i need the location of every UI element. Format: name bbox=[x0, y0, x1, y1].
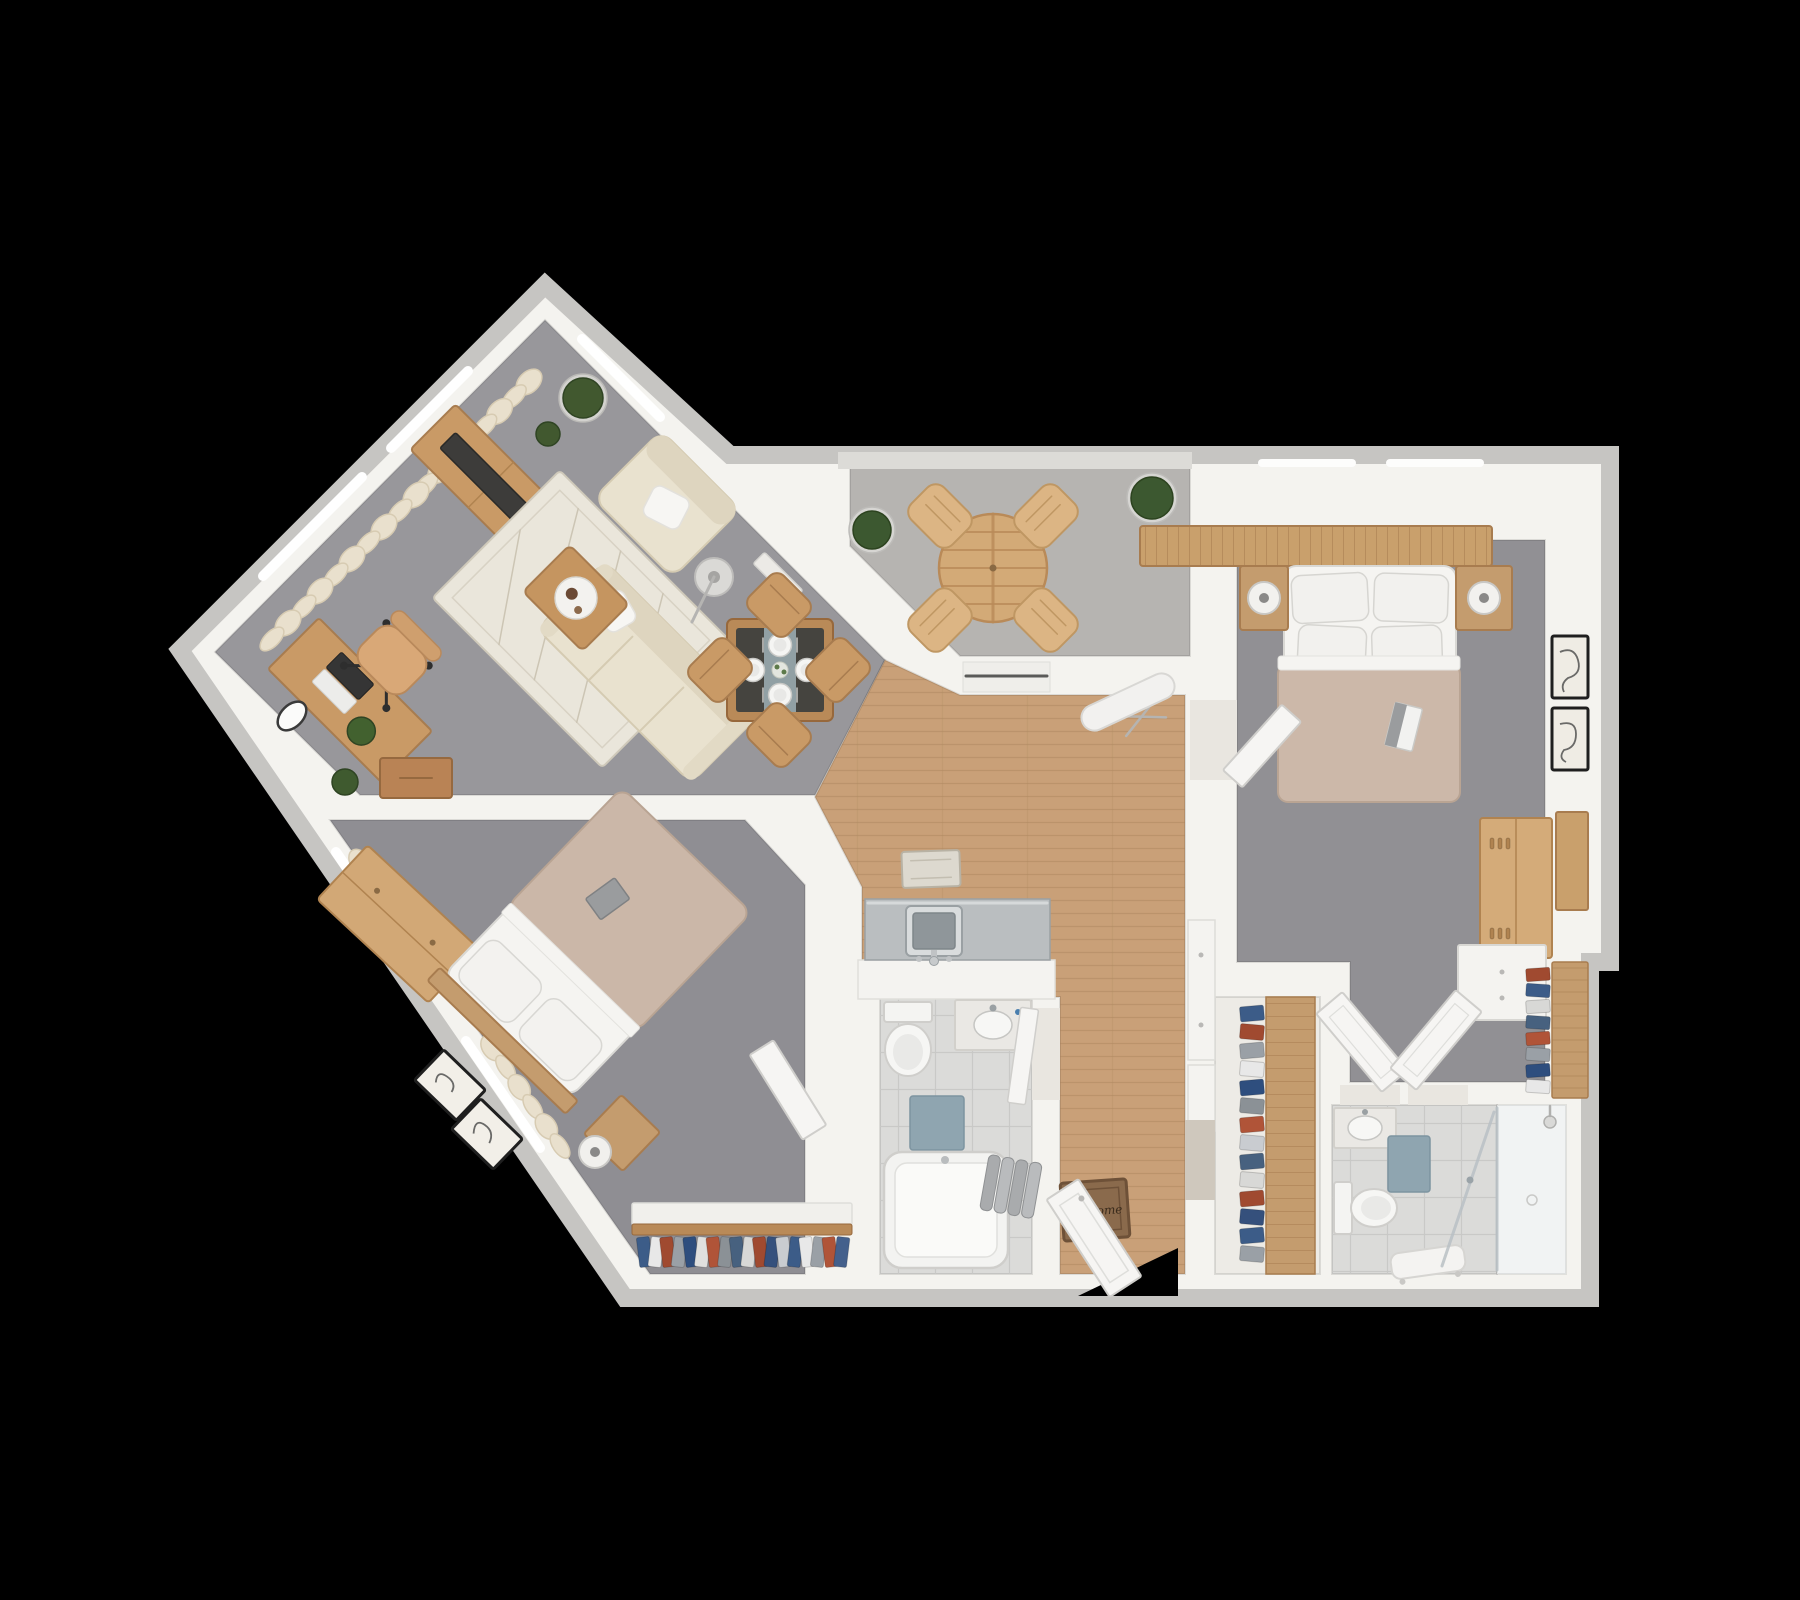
corridor-cabinet-upper bbox=[1188, 920, 1215, 1060]
master-pillow-1 bbox=[1291, 572, 1369, 624]
closet-item bbox=[1239, 1208, 1264, 1225]
kitchen-sink-basin bbox=[913, 913, 955, 949]
closet-item bbox=[1526, 967, 1551, 982]
closet-item bbox=[1526, 999, 1551, 1014]
master-closet2-shelf bbox=[1552, 962, 1588, 1098]
plate-south-inner bbox=[774, 689, 787, 702]
closet-item bbox=[1239, 1005, 1264, 1022]
closet-item bbox=[1498, 838, 1502, 849]
closet-item bbox=[1239, 1060, 1264, 1077]
closet-item bbox=[1490, 928, 1494, 939]
centerpiece-leaf-1 bbox=[775, 665, 780, 670]
closet-item bbox=[1526, 1015, 1551, 1030]
corner-plant bbox=[332, 769, 358, 795]
vanity1-sink bbox=[974, 1011, 1012, 1039]
closet-item bbox=[1526, 983, 1551, 998]
closet-item bbox=[1526, 1063, 1551, 1078]
wardrobe-vents-bottom bbox=[1490, 928, 1510, 939]
master-pillow-2 bbox=[1373, 573, 1449, 624]
vanity-knob-1 bbox=[1500, 970, 1505, 975]
master-blanket-fold bbox=[1278, 656, 1460, 670]
kitchen-knob-2 bbox=[946, 956, 952, 962]
closet-item bbox=[1239, 1153, 1264, 1170]
toilet1-tank bbox=[884, 1002, 932, 1022]
closet-item bbox=[1490, 838, 1494, 849]
closet-item bbox=[1506, 838, 1510, 849]
closet-item bbox=[1239, 1190, 1264, 1207]
toilet2-tank bbox=[1334, 1182, 1352, 1234]
vanity-knob-2 bbox=[1500, 996, 1505, 1001]
wood-panel-leaning bbox=[1556, 812, 1588, 910]
bath1-mat bbox=[910, 1096, 964, 1150]
wardrobe-vents-top bbox=[1490, 838, 1510, 849]
master-art-frame-1 bbox=[1552, 636, 1588, 698]
floor-plan-canvas: Welcome bbox=[0, 0, 1800, 1600]
centerpiece-leaf-2 bbox=[782, 670, 787, 675]
closet-item bbox=[1526, 1079, 1551, 1094]
closet-item bbox=[1239, 1134, 1264, 1151]
shower-floor bbox=[1497, 1105, 1566, 1274]
corridor-cabinet-knob-1 bbox=[1199, 953, 1204, 958]
closet-item bbox=[1239, 1023, 1264, 1040]
closet-item bbox=[1526, 1047, 1551, 1062]
closet-item bbox=[1239, 1079, 1264, 1096]
toilet1-seat bbox=[893, 1034, 923, 1070]
closet-item bbox=[1239, 1171, 1264, 1188]
balcony-plant-2 bbox=[1131, 477, 1173, 519]
rug-base bbox=[901, 850, 960, 888]
shower-head bbox=[1544, 1116, 1556, 1128]
closet-item bbox=[1239, 1097, 1264, 1114]
bathtub-faucet bbox=[941, 1156, 949, 1164]
master-blanket bbox=[1278, 664, 1460, 802]
master-headboard bbox=[1140, 526, 1492, 566]
master-art-frame-2 bbox=[1552, 708, 1588, 770]
closet-item bbox=[1239, 1227, 1264, 1244]
closet-item bbox=[1506, 928, 1510, 939]
master-lamp-left-bulb bbox=[1259, 593, 1269, 603]
walkin-closet-shelf bbox=[1266, 997, 1315, 1274]
bathtub-basin bbox=[895, 1163, 997, 1257]
corridor-cabinet-knob-2 bbox=[1199, 1023, 1204, 1028]
balcony-railing-band bbox=[838, 452, 1192, 469]
master-lamp-right-bulb bbox=[1479, 593, 1489, 603]
vanity2-sink bbox=[1348, 1116, 1382, 1140]
kitchen-rug bbox=[901, 850, 960, 888]
bedroom2-closet-rail bbox=[632, 1224, 852, 1235]
console-plant bbox=[536, 422, 560, 446]
closet-doorway-threshold bbox=[1185, 1120, 1215, 1200]
kitchen-half-wall bbox=[858, 960, 1055, 999]
vanity1-faucet bbox=[990, 1005, 997, 1012]
apartment-floor-plan: Welcome bbox=[0, 0, 1800, 1600]
plate-north-inner bbox=[774, 639, 787, 652]
kitchen-knob-1 bbox=[916, 956, 922, 962]
closet-item bbox=[1239, 1042, 1264, 1059]
centerpiece bbox=[772, 662, 788, 678]
shower-door-handle bbox=[1467, 1177, 1474, 1184]
closet-item bbox=[1239, 1245, 1264, 1262]
toilet2-seat bbox=[1361, 1196, 1391, 1220]
living-plant bbox=[563, 378, 603, 418]
bedroom2-closet-shelf bbox=[632, 1203, 852, 1225]
closet-item bbox=[1526, 1031, 1551, 1046]
kitchen-faucet bbox=[930, 957, 939, 966]
balcony-umbrella-hole bbox=[990, 565, 997, 572]
master-door-threshold-1 bbox=[1340, 1085, 1400, 1105]
walkin-closet-shelf-planks bbox=[1266, 1004, 1315, 1264]
vanity2-faucet bbox=[1362, 1109, 1368, 1115]
closet-item bbox=[1239, 1116, 1264, 1133]
closet-item bbox=[1498, 928, 1502, 939]
bath2-mat bbox=[1388, 1136, 1430, 1192]
balcony-plant-1 bbox=[853, 511, 891, 549]
bedroom2-lamp-bulb bbox=[590, 1147, 600, 1157]
